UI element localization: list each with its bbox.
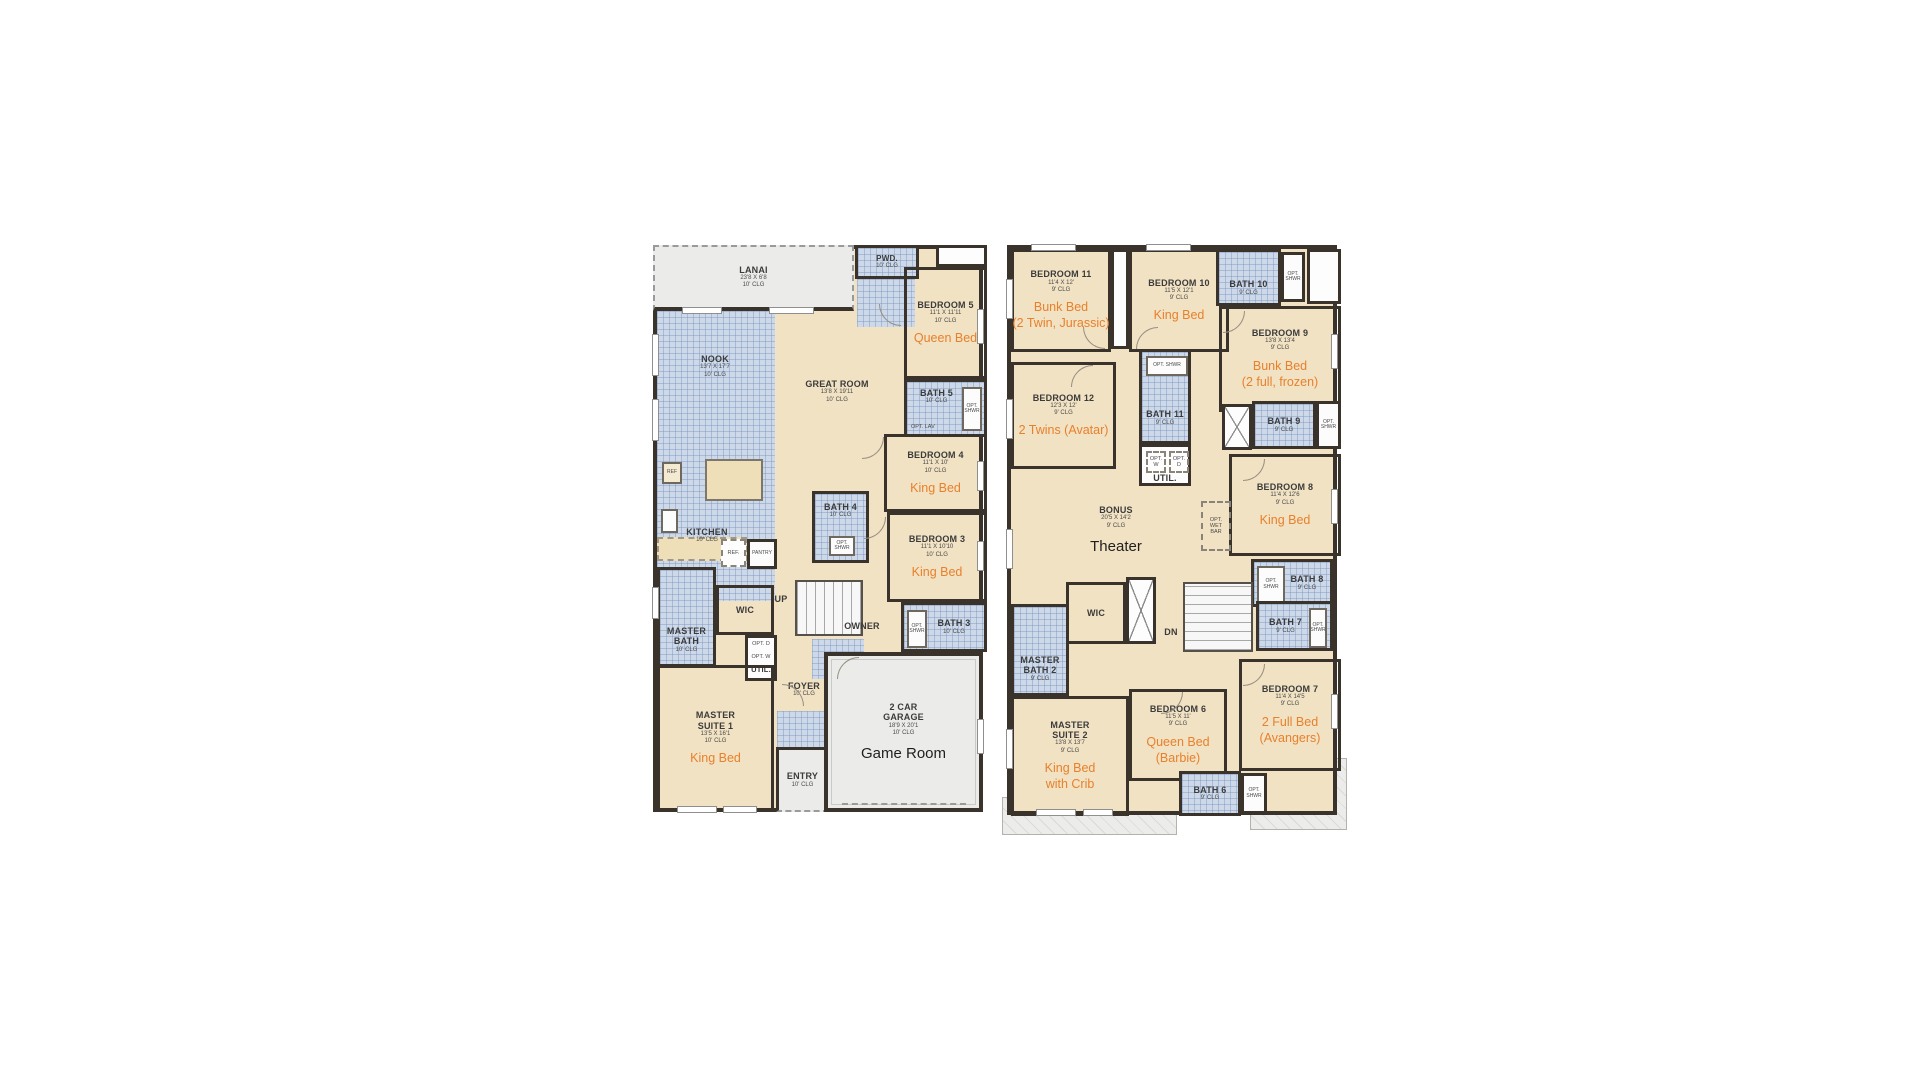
- window: [682, 307, 722, 314]
- room-master-bath-2: MASTER BATH 2 9' CLG: [1011, 604, 1069, 696]
- window: [977, 309, 984, 344]
- window: [1083, 809, 1113, 816]
- window: [1331, 489, 1338, 524]
- room-bath-5: BATH 5 10' CLG OPT. LAV OPT. SHWR: [904, 379, 987, 437]
- room-bedroom-5: BEDROOM 5 11'1 X 11'11 10' CLG Queen Bed: [904, 267, 987, 379]
- opt-shower: OPT. SHWR: [907, 610, 927, 648]
- window: [1006, 279, 1013, 319]
- door-arc: [862, 437, 884, 459]
- stairs-down: [1183, 582, 1253, 652]
- closet: [1222, 404, 1252, 450]
- game-room-label: Game Room: [861, 745, 946, 762]
- opt-washer: OPT. W: [1146, 451, 1166, 473]
- window: [1331, 694, 1338, 729]
- opt-shower: OPT. SHWR: [1281, 252, 1305, 302]
- closet: [1307, 249, 1341, 304]
- closet: [1111, 249, 1129, 349]
- pantry: PANTRY: [747, 539, 777, 569]
- room-nook: NOOK 13'7 X 17'7 10' CLG: [665, 354, 765, 379]
- window: [1006, 399, 1013, 439]
- room-label: LANAI: [739, 265, 768, 275]
- room-bath-3: BATH 3 10' CLG OPT. SHWR: [901, 602, 987, 652]
- window: [652, 334, 659, 376]
- stairs-up-label: UP: [769, 594, 793, 604]
- garage-door: [842, 803, 966, 805]
- room-bonus: BONUS 20'5 X 14'2 9' CLG Theater: [1051, 505, 1181, 555]
- room-bath-8: OPT. SHWR BATH 8 9' CLG: [1251, 559, 1333, 607]
- window: [769, 307, 814, 314]
- window: [1331, 334, 1338, 369]
- window: [723, 806, 757, 813]
- room-bath-9: BATH 9 9' CLG: [1252, 401, 1316, 449]
- room-bedroom-4: BEDROOM 4 11'1 X 10' 10' CLG King Bed: [884, 434, 987, 512]
- opt-shower: OPT. SHWR: [1241, 773, 1267, 814]
- opt-shower: OPT. SHWR: [829, 536, 855, 556]
- first-floor-plan: LANAI 23'8 X 6'8 10' CLG NOOK 13'7 X 17'…: [653, 245, 983, 812]
- stairs-down-label: DN: [1159, 627, 1183, 637]
- refrigerator: REF: [662, 462, 682, 484]
- room-master-suite-2: MASTER SUITE 2 13'8 X 13'7 9' CLG King B…: [1011, 696, 1129, 816]
- opt-dryer: OPT. D: [1169, 451, 1189, 473]
- opt-refrigerator: REF.: [721, 539, 746, 567]
- room-wic: WIC: [1066, 582, 1126, 644]
- room-wic: WIC: [716, 585, 774, 635]
- room-bath-7: BATH 7 9' CLG OPT. SHWR: [1256, 601, 1333, 651]
- room-master-suite-1: MASTER SUITE 1 13'5 X 16'1 10' CLG King …: [657, 665, 774, 812]
- window: [977, 719, 984, 754]
- bedroom5-closet: [936, 245, 987, 267]
- window: [1031, 244, 1076, 251]
- room-bedroom-3: BEDROOM 3 11'1 X 10'10 10' CLG King Bed: [887, 512, 987, 602]
- theater-label: Theater: [1090, 538, 1142, 555]
- opt-shower: OPT. SHWR: [1257, 566, 1285, 603]
- window: [652, 399, 659, 441]
- closet: [1126, 577, 1156, 644]
- room-bath-4: BATH 4 10' CLG OPT. SHWR: [812, 491, 869, 563]
- room-utility: OPT. W OPT. D UTIL.: [1139, 444, 1191, 486]
- opt-wet-bar: OPT. WET BAR: [1201, 501, 1231, 551]
- kitchen-island: [705, 459, 763, 501]
- window: [1146, 244, 1191, 251]
- opt-shower: OPT. SHWR: [962, 387, 982, 431]
- floorplan-page: { "colors":{"wall_brown":"#3a332b","room…: [0, 0, 1920, 1080]
- room-bath-11: OPT. SHWR BATH 11 9' CLG: [1139, 349, 1191, 444]
- window: [652, 587, 659, 619]
- room-bath-6: BATH 6 9' CLG: [1179, 771, 1241, 816]
- opt-shower: OPT. SHWR: [1146, 356, 1188, 376]
- window: [1006, 529, 1013, 569]
- opt-shower: OPT. SHWR: [1316, 401, 1341, 449]
- opt-lav-label: OPT. LAV: [911, 424, 935, 430]
- window: [977, 541, 984, 571]
- room-entry: ENTRY 10' CLG: [776, 747, 829, 812]
- room-bedroom-12: BEDROOM 12 12'3 X 12' 9' CLG 2 Twins (Av…: [1011, 362, 1116, 469]
- window: [1036, 809, 1076, 816]
- room-lanai: LANAI 23'8 X 6'8 10' CLG: [653, 245, 854, 311]
- window: [977, 461, 984, 491]
- window: [1006, 729, 1013, 769]
- room-great-room: GREAT ROOM 13'8 X 19'11 10' CLG: [782, 379, 892, 404]
- opt-shower: OPT. SHWR: [1309, 608, 1327, 648]
- owner-entry-label: OWNER: [832, 621, 892, 631]
- room-bath-10: BATH 10 9' CLG: [1216, 249, 1281, 306]
- second-floor-plan: BEDROOM 11 11'4 X 12' 9' CLG Bunk Bed (2…: [1007, 245, 1337, 815]
- door-arc: [864, 517, 886, 539]
- room-master-bath: MASTER BATH 10' CLG: [657, 567, 716, 667]
- window: [677, 806, 717, 813]
- foyer-floor: [777, 711, 831, 747]
